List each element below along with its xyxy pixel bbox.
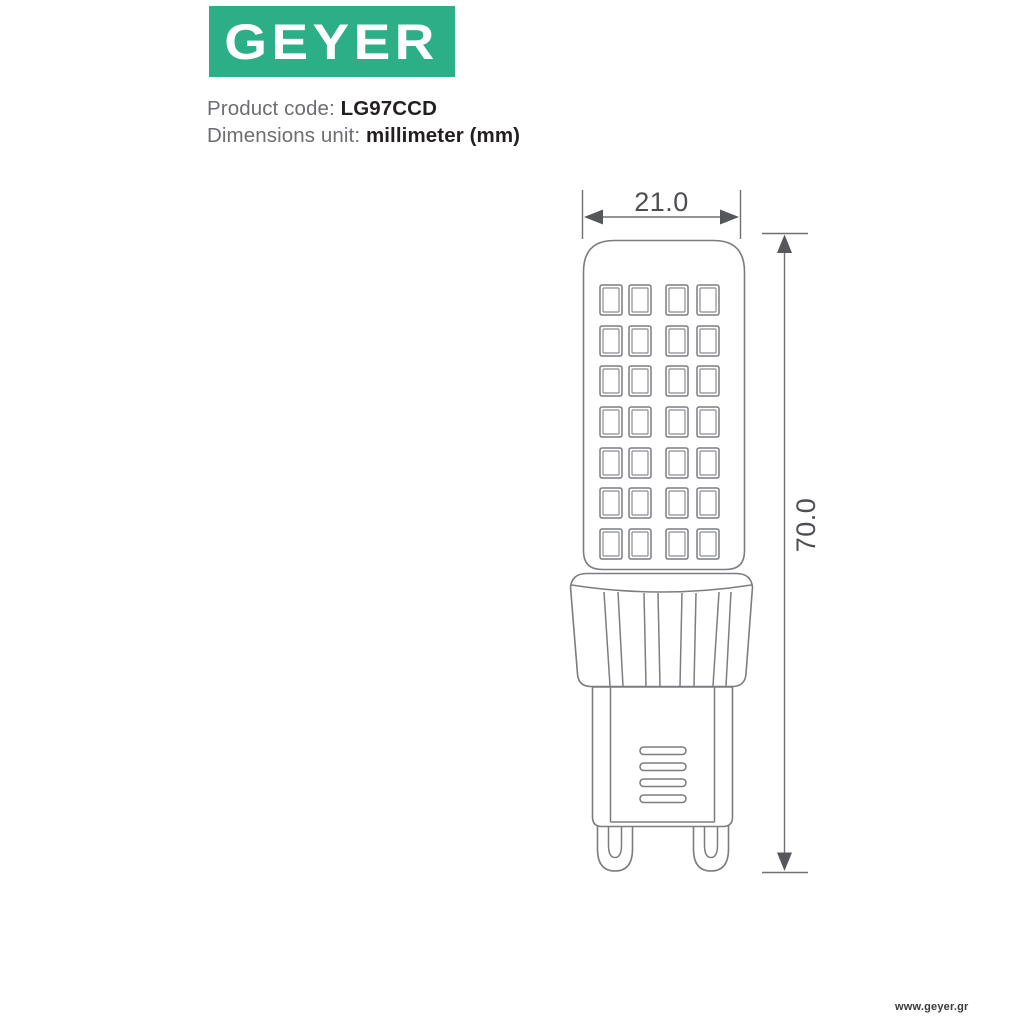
lamp-base: [593, 687, 733, 827]
brand-logo-text: GEYER: [225, 17, 440, 67]
product-code-label: Product code:: [207, 97, 341, 120]
collar-outline: [571, 574, 753, 687]
lamp-technical-drawing: 21.0 70.0: [540, 170, 850, 890]
height-dimension-label: 70.0: [791, 498, 821, 553]
base-outline: [593, 687, 733, 827]
height-dimension: 70.0: [762, 234, 821, 873]
dimensions-unit-value: millimeter (mm): [366, 124, 520, 147]
product-code-line: Product code: LG97CCD: [207, 97, 437, 121]
dimensions-unit-line: Dimensions unit: millimeter (mm): [207, 124, 520, 148]
product-code-value: LG97CCD: [341, 97, 437, 120]
width-dimension-label: 21.0: [634, 187, 689, 217]
arrow-up-icon: [777, 235, 792, 254]
website-url: www.geyer.gr: [895, 1001, 969, 1013]
arrow-down-icon: [777, 853, 792, 872]
width-dimension: 21.0: [583, 187, 741, 239]
dimensions-unit-label: Dimensions unit:: [207, 124, 366, 147]
lamp-collar: [571, 574, 753, 687]
arrow-left-icon: [584, 210, 603, 225]
brand-logo: GEYER: [209, 6, 455, 77]
arrow-right-icon: [720, 210, 739, 225]
datasheet-page: GEYER Product code: LG97CCD Dimensions u…: [0, 0, 1024, 1024]
